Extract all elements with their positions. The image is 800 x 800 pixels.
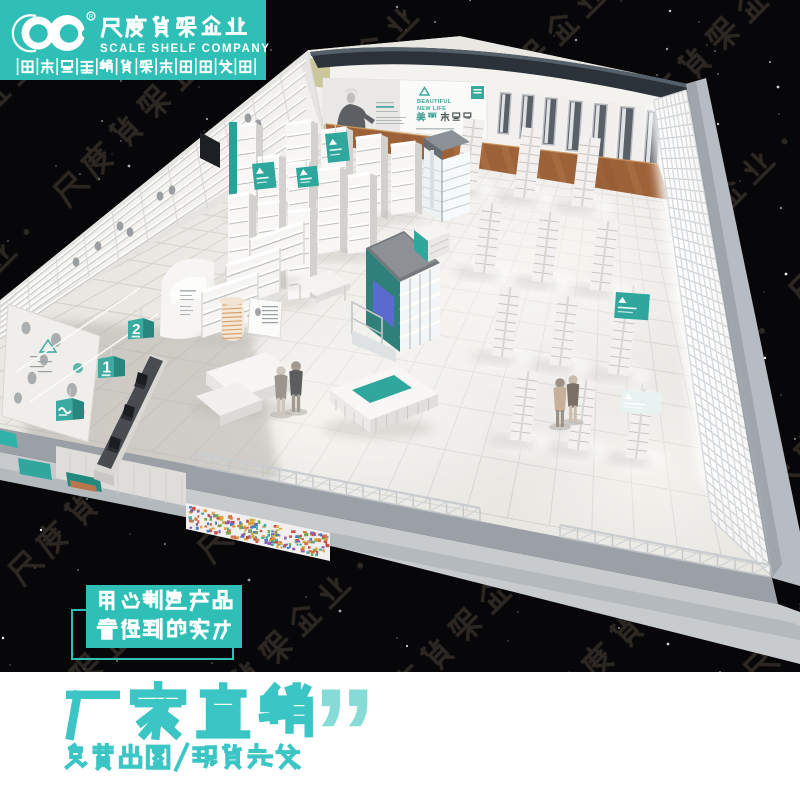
svg-text:1: 1	[102, 360, 111, 377]
svg-text:”: ”	[312, 661, 377, 800]
svg-text:SCALE SHELF COMPANY: SCALE SHELF COMPANY	[100, 43, 270, 55]
svg-text:NEW LIFE: NEW LIFE	[417, 106, 446, 112]
svg-text:R: R	[89, 15, 94, 21]
svg-text:2: 2	[132, 321, 140, 338]
svg-text:BEAUTIFUL: BEAUTIFUL	[417, 99, 452, 105]
